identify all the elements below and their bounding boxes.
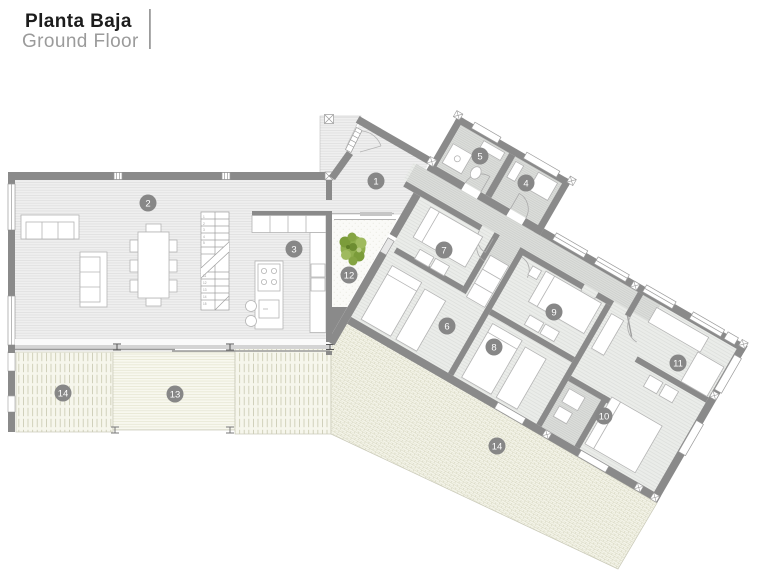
svg-text:8: 8 [491,343,496,354]
svg-text:Planta Baja: Planta Baja [25,11,132,32]
svg-text:15: 15 [203,302,207,306]
svg-text:7: 7 [441,246,446,257]
svg-text:2: 2 [203,222,205,226]
svg-text:13: 13 [170,390,181,401]
svg-text:4: 4 [203,235,205,239]
svg-text:Ground Floor: Ground Floor [22,31,139,52]
svg-text:14: 14 [58,389,69,400]
svg-text:12: 12 [203,281,207,285]
svg-text:2: 2 [145,199,150,210]
svg-text:9: 9 [551,308,556,319]
svg-text:6: 6 [444,322,449,333]
svg-text:14: 14 [203,295,207,299]
svg-text:5: 5 [203,241,205,245]
svg-text:13: 13 [203,288,207,292]
svg-text:3: 3 [203,228,205,232]
svg-text:10: 10 [599,412,610,423]
svg-text:1: 1 [203,215,205,219]
svg-text:1: 1 [373,177,378,188]
svg-text:11: 11 [203,274,207,278]
svg-text:12: 12 [344,271,355,282]
svg-text:3: 3 [291,245,296,256]
svg-text:4: 4 [523,179,528,190]
svg-text:14: 14 [492,442,503,453]
svg-text:11: 11 [673,359,683,370]
svg-text:5: 5 [477,152,482,163]
